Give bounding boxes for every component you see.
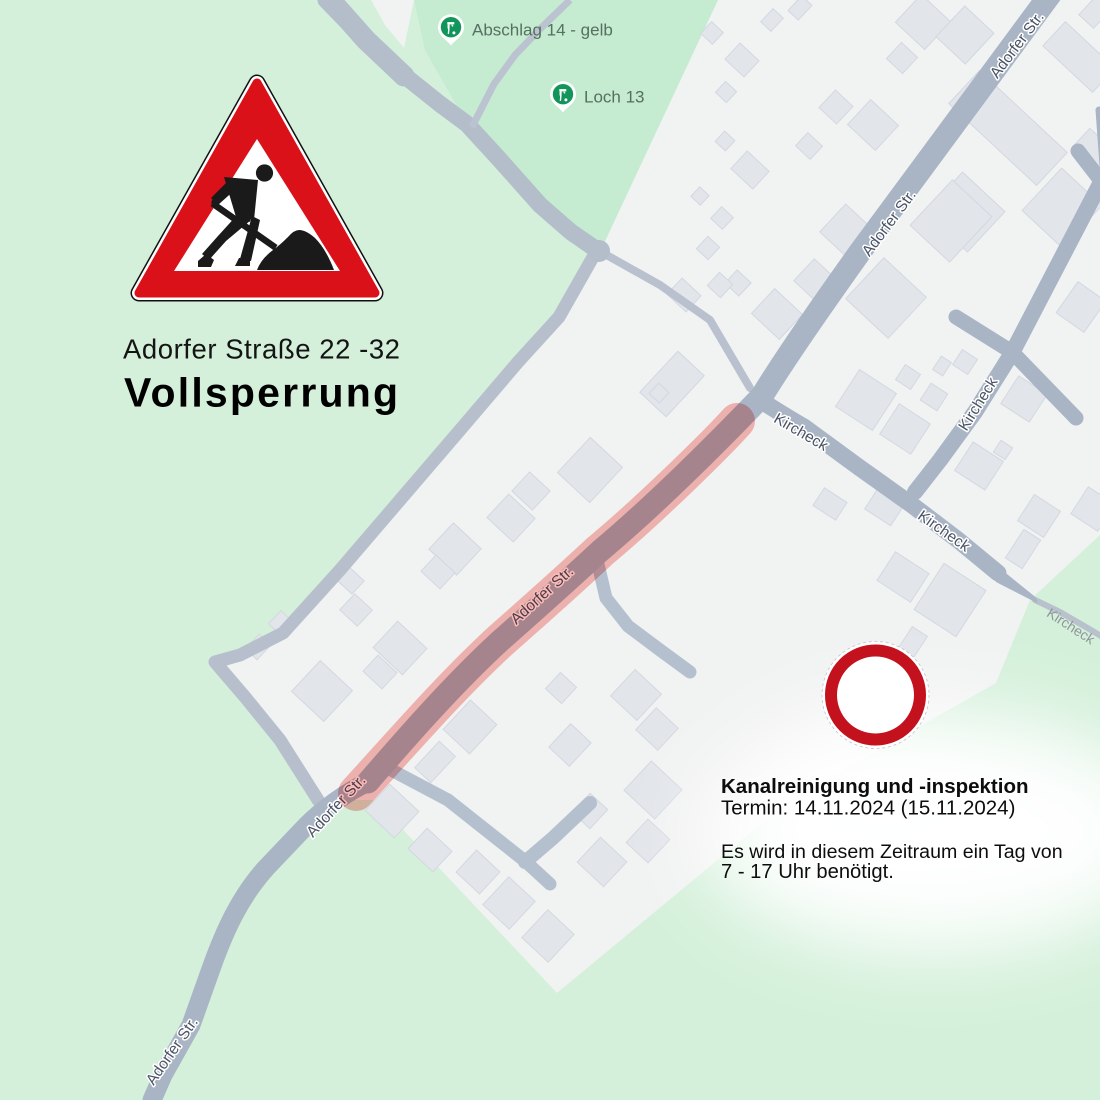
svg-text:7 - 17 Uhr benötigt.: 7 - 17 Uhr benötigt. (721, 861, 894, 883)
svg-text:Loch 13: Loch 13 (584, 88, 645, 107)
svg-text:Adorfer Straße 22 -32: Adorfer Straße 22 -32 (123, 333, 401, 364)
svg-text:Kanalreinigung und -inspektion: Kanalreinigung und -inspektion (721, 775, 1029, 798)
svg-text:Abschlag 14 - gelb: Abschlag 14 - gelb (472, 21, 613, 40)
svg-text:Es wird in diesem Zeitraum ein: Es wird in diesem Zeitraum ein Tag von (721, 841, 1063, 863)
svg-text:Termin: 14.11.2024 (15.11.2024: Termin: 14.11.2024 (15.11.2024) (721, 797, 1015, 820)
svg-text:Vollsperrung: Vollsperrung (124, 370, 400, 416)
